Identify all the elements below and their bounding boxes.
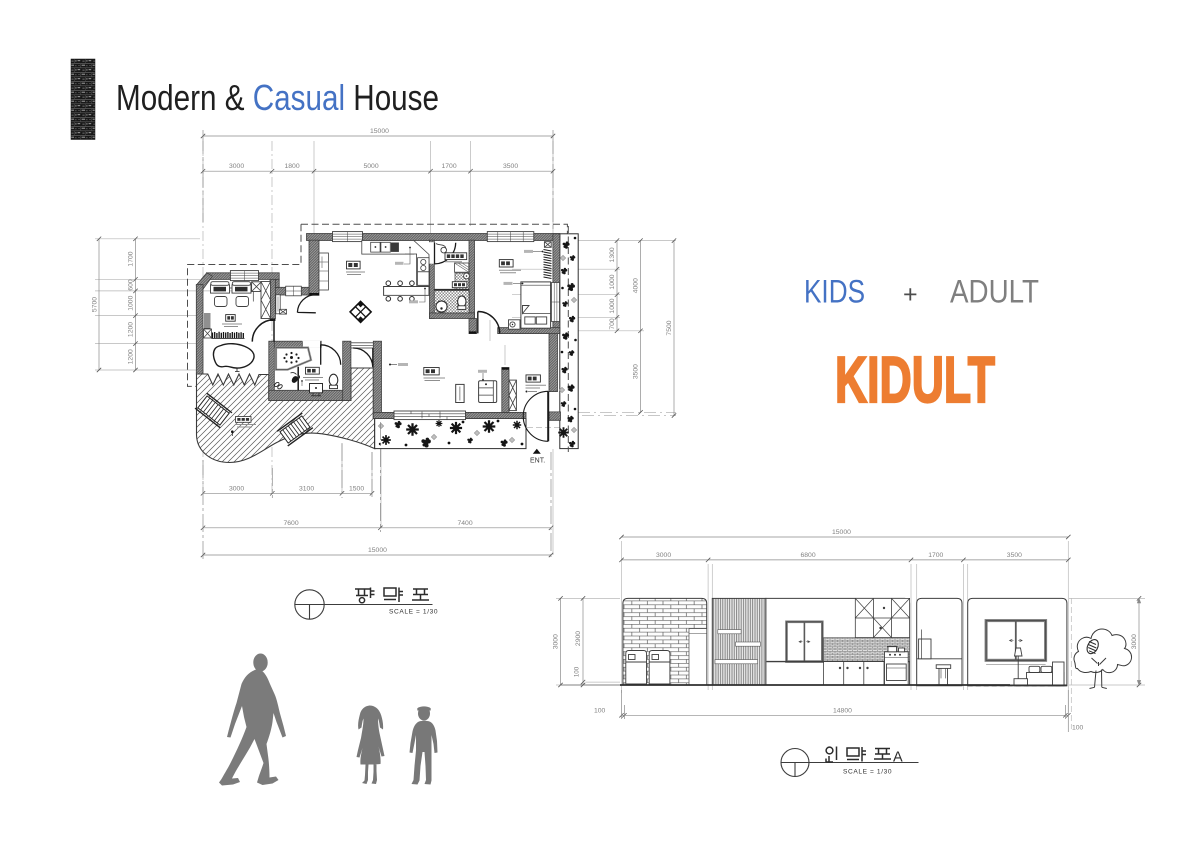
svg-text:3100: 3100 <box>299 485 314 492</box>
svg-text:ENT.: ENT. <box>530 458 545 465</box>
svg-text:7400: 7400 <box>458 520 473 527</box>
svg-text:1500: 1500 <box>349 485 364 492</box>
svg-text:1800: 1800 <box>285 163 300 170</box>
svg-text:1700: 1700 <box>928 552 943 559</box>
svg-text:+: + <box>903 281 918 309</box>
svg-text:3500: 3500 <box>633 364 640 379</box>
svg-text:ADULT: ADULT <box>950 274 1039 310</box>
svg-text:SCALE = 1/30: SCALE = 1/30 <box>389 609 438 616</box>
svg-text:KIDS: KIDS <box>804 274 865 310</box>
svg-text:3000: 3000 <box>656 552 671 559</box>
svg-text:1200: 1200 <box>128 349 135 364</box>
svg-text:600: 600 <box>128 279 135 291</box>
svg-text:100: 100 <box>594 707 606 714</box>
svg-text:5000: 5000 <box>364 163 379 170</box>
svg-text:SCALE = 1/30: SCALE = 1/30 <box>843 769 892 776</box>
svg-text:KIDULT: KIDULT <box>835 343 995 416</box>
svg-text:1700: 1700 <box>128 251 135 266</box>
svg-text:1200: 1200 <box>128 322 135 337</box>
svg-text:14800: 14800 <box>833 707 852 714</box>
svg-text:A: A <box>893 750 903 766</box>
svg-text:1000: 1000 <box>609 298 616 313</box>
svg-text:6800: 6800 <box>801 552 816 559</box>
svg-text:7500: 7500 <box>666 320 673 335</box>
svg-text:15000: 15000 <box>832 529 851 536</box>
svg-text:1300: 1300 <box>609 247 616 262</box>
svg-text:3000: 3000 <box>553 634 560 649</box>
svg-text:3000: 3000 <box>229 485 244 492</box>
svg-text:4000: 4000 <box>633 278 640 293</box>
svg-text:3000: 3000 <box>229 163 244 170</box>
svg-text:2900: 2900 <box>575 631 582 646</box>
svg-text:3500: 3500 <box>503 163 518 170</box>
svg-text:5700: 5700 <box>92 297 99 312</box>
svg-text:100: 100 <box>1072 725 1084 732</box>
svg-text:3500: 3500 <box>1007 552 1022 559</box>
svg-text:15000: 15000 <box>370 128 389 135</box>
svg-text:700: 700 <box>609 318 616 330</box>
svg-text:15000: 15000 <box>368 547 387 554</box>
svg-text:1700: 1700 <box>442 163 457 170</box>
svg-text:100: 100 <box>574 666 581 677</box>
svg-text:Modern & Casual House: Modern & Casual House <box>116 77 439 118</box>
svg-text:7600: 7600 <box>284 520 299 527</box>
svg-text:1000: 1000 <box>609 274 616 289</box>
svg-text:3000: 3000 <box>1131 634 1138 649</box>
svg-text:1000: 1000 <box>128 295 135 310</box>
